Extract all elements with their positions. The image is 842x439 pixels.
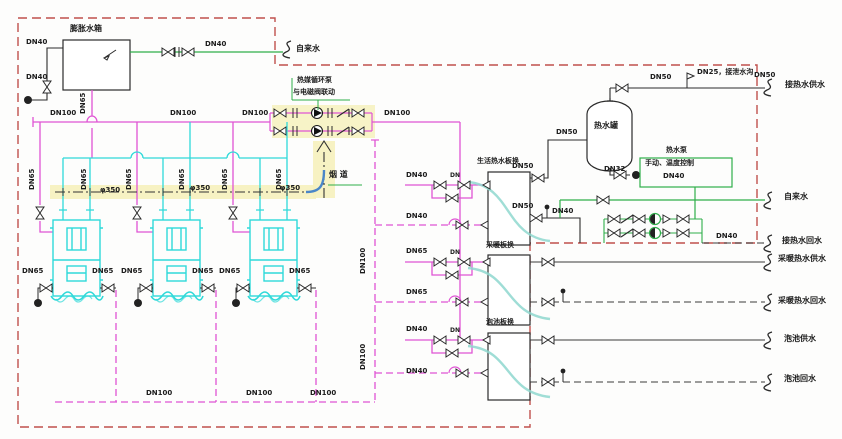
diagram-canvas bbox=[0, 0, 842, 439]
tank-pipes bbox=[530, 88, 765, 243]
tap-water-line-right bbox=[560, 158, 765, 219]
crossing-humps bbox=[371, 140, 461, 373]
highlight-bands bbox=[50, 105, 375, 199]
branch-valves bbox=[434, 181, 490, 377]
boiler-3 bbox=[247, 220, 300, 302]
service-lines bbox=[530, 243, 765, 382]
boiler-drain-pipes bbox=[38, 288, 316, 300]
boiler-header bbox=[59, 122, 291, 220]
heat-exchangers bbox=[488, 172, 530, 400]
boiler-room-piping-diagram: 膨胀水箱DN40DN40DN40自来水DN65DN100DN100DN100DN… bbox=[0, 0, 842, 439]
hot-water-tank bbox=[587, 98, 632, 171]
boiler-2 bbox=[150, 220, 203, 302]
return-mains bbox=[55, 140, 488, 402]
supply-main bbox=[33, 90, 488, 353]
boiler-1 bbox=[50, 220, 103, 302]
expansion-tank bbox=[63, 40, 130, 90]
makeup-pump-symbols bbox=[608, 214, 689, 239]
